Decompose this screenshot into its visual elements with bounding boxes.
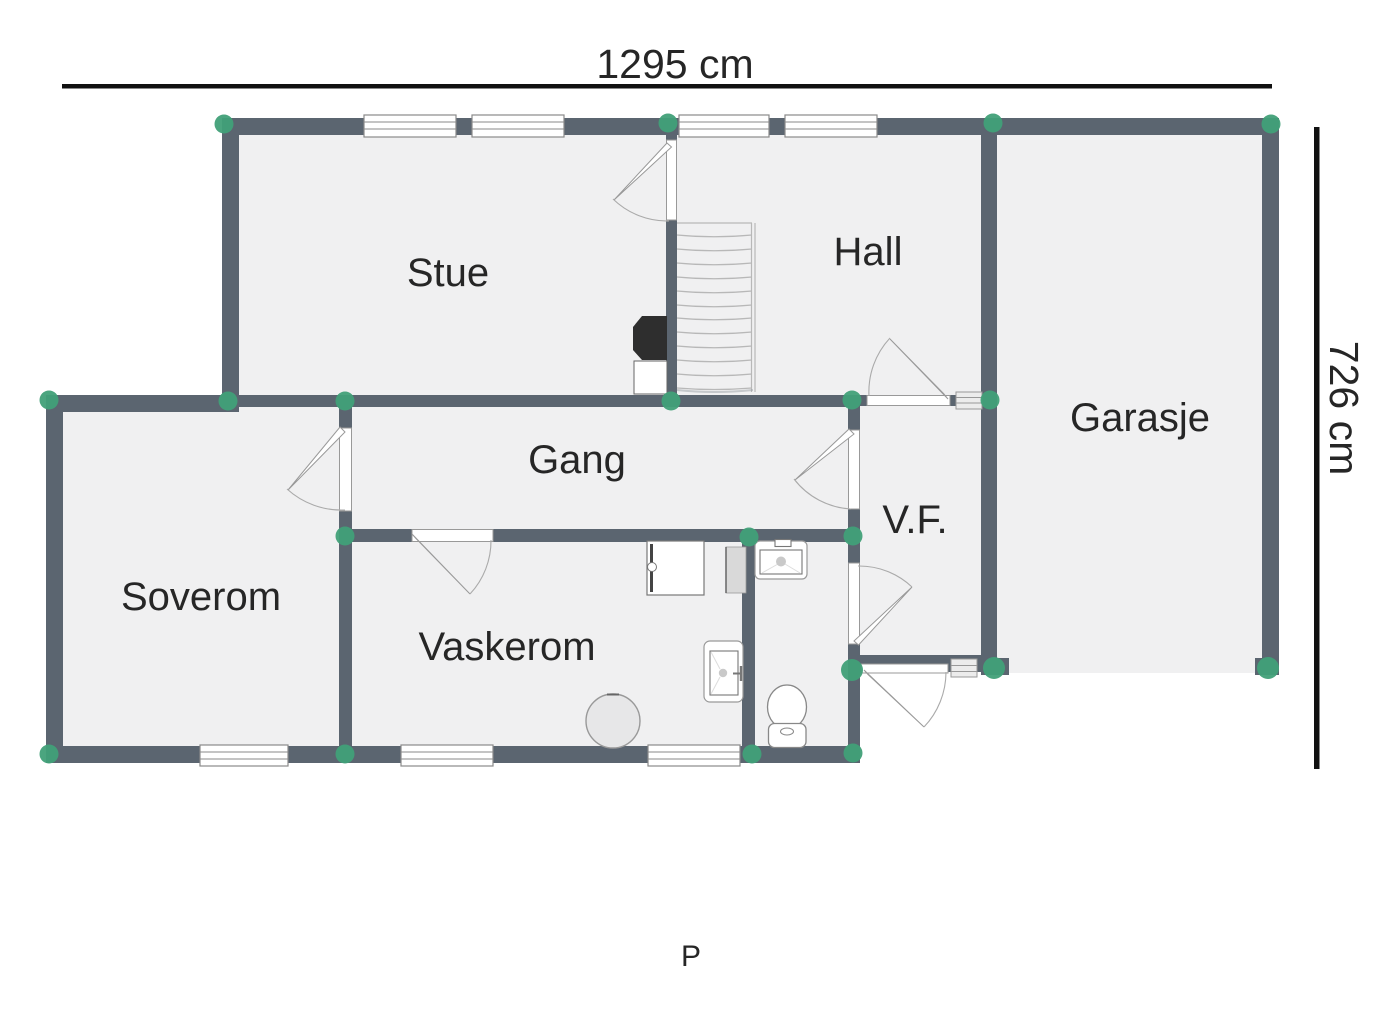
svg-text:726 cm: 726 cm <box>1321 341 1367 475</box>
svg-text:Soverom: Soverom <box>121 575 281 619</box>
svg-text:Hall: Hall <box>834 230 903 274</box>
svg-text:Stue: Stue <box>407 251 489 295</box>
svg-text:1295 cm: 1295 cm <box>596 41 753 87</box>
svg-text:Vaskerom: Vaskerom <box>418 625 595 669</box>
svg-text:P: P <box>681 940 701 973</box>
svg-text:V.F.: V.F. <box>882 498 947 542</box>
svg-text:Gang: Gang <box>528 438 626 482</box>
svg-text:Garasje: Garasje <box>1070 396 1210 440</box>
